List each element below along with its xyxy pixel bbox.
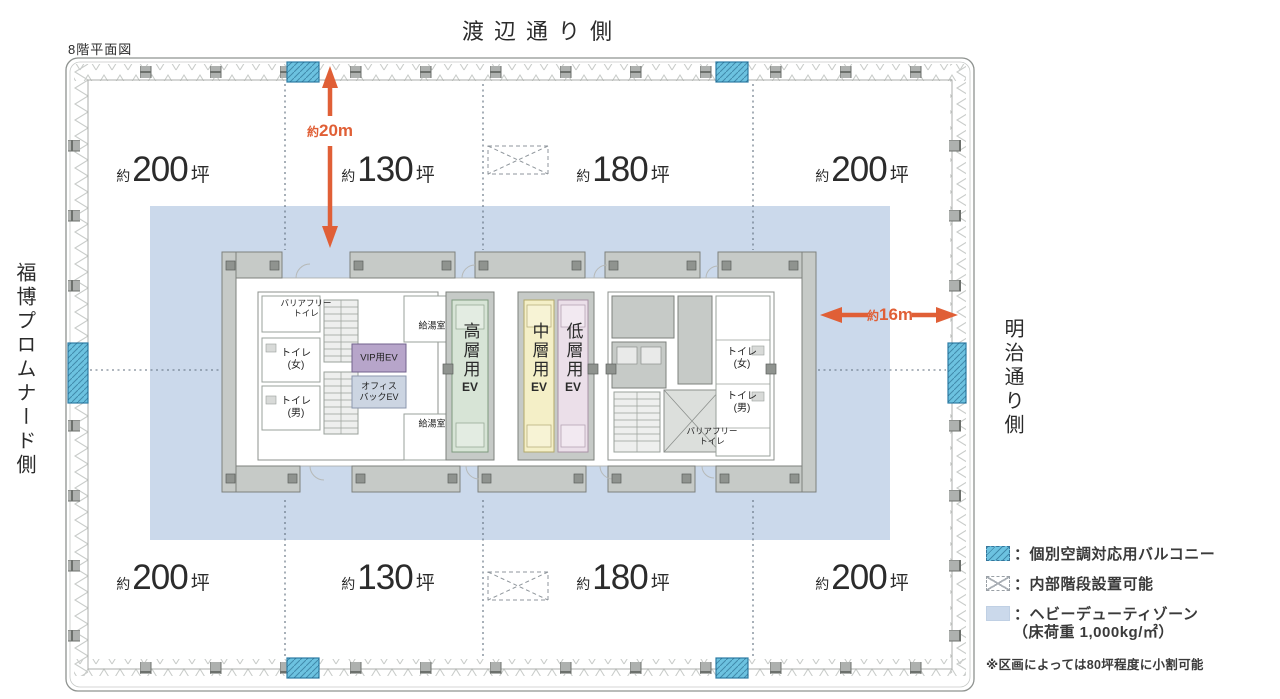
area-label-bottom-3: 約180坪 <box>563 558 683 598</box>
area-label-top-3: 約180坪 <box>563 150 683 190</box>
stairwell <box>614 392 660 452</box>
area-label-bottom-2: 約130坪 <box>328 558 448 598</box>
heavy-duty-swatch-icon <box>986 606 1010 621</box>
legend-item-balcony: ：個別空調対応用バルコニー <box>986 543 1280 564</box>
toilet-women-label-right: トイレ(女) <box>727 347 757 371</box>
low-rise-elevator-label: 低層用EV <box>561 322 586 394</box>
legend: ：個別空調対応用バルコニー ：内部階段設置可能 ：ヘビーデューティゾーン （床荷… <box>986 543 1280 673</box>
toilet-men-label-right: トイレ(男) <box>727 391 757 415</box>
pantry-label-top: 給湯室 <box>418 321 445 332</box>
perimeter-columns-bottom <box>100 662 960 674</box>
core-structure <box>222 252 816 492</box>
dimension-16m-label: 約16m <box>867 305 913 325</box>
barrier-free-toilet-label-left: バリアフリートイレ <box>280 298 331 318</box>
vip-elevator-label: VIP用EV <box>360 352 398 363</box>
office-back-elevator-label: オフィスバックEV <box>359 381 398 403</box>
mid-rise-elevator-label: 中層用EV <box>527 322 552 394</box>
barrier-free-toilet-label-right: バリアフリートイレ <box>686 426 737 446</box>
perimeter-columns-top <box>100 66 960 78</box>
toilet-women-label-left: トイレ(女) <box>281 348 311 372</box>
area-label-top-4: 約200坪 <box>802 150 922 190</box>
area-label-top-1: 約200坪 <box>103 150 223 190</box>
area-label-bottom-4: 約200坪 <box>802 558 922 598</box>
internal-stairs-swatch-icon <box>986 576 1010 591</box>
floor-plan-page: 8階平面図 渡辺通り側 福博プロムナード側 明治通り側 約200坪 約130坪 … <box>0 0 1280 699</box>
legend-heavy-duty-subline: （床荷重 1,000kg/㎡） <box>1013 621 1280 642</box>
page-title: 8階平面図 <box>68 39 132 58</box>
pantry-label-bottom: 給湯室 <box>418 419 445 430</box>
dimension-20m-label: 約20m <box>307 121 353 141</box>
legend-item-internal-stairs: ：内部階段設置可能 <box>986 573 1280 594</box>
area-label-bottom-1: 約200坪 <box>103 558 223 598</box>
high-rise-elevator-label: 高層用EV <box>458 322 483 394</box>
legend-note: ※区画によっては80坪程度に小割可能 <box>986 654 1280 673</box>
balcony-swatch-icon <box>986 546 1010 561</box>
area-label-top-2: 約130坪 <box>328 150 448 190</box>
street-label-fukuhaku-promenade: 福博プロムナード側 <box>10 262 39 478</box>
toilet-men-label-left: トイレ(男) <box>281 396 311 420</box>
street-label-meiji: 明治通り側 <box>998 318 1027 438</box>
street-label-watanabe: 渡辺通り側 <box>462 14 622 46</box>
